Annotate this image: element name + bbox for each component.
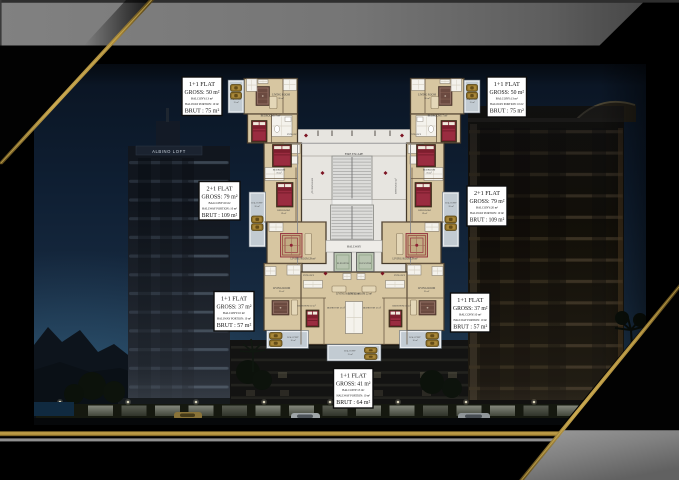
- svg-text:LIVING ROOM: LIVING ROOM: [273, 287, 291, 290]
- svg-text:BEDROOM 10 m²: BEDROOM 10 m²: [297, 305, 315, 308]
- svg-text:FIRE ESCAPE: FIRE ESCAPE: [345, 152, 364, 156]
- svg-text:BALCONY: BALCONY: [230, 98, 242, 101]
- svg-text:BRUT : 57 m²: BRUT : 57 m²: [217, 322, 252, 329]
- svg-text:ENTRANCE 5m²: ENTRANCE 5m²: [311, 178, 314, 194]
- svg-text:GROSS: 79 m²: GROSS: 79 m²: [202, 194, 238, 201]
- svg-text:HALLWAY PORTION: 10 m²: HALLWAY PORTION: 10 m²: [185, 102, 219, 106]
- svg-text:BEDROOM 12 m²: BEDROOM 12 m²: [327, 307, 345, 310]
- svg-text:GROSS: 41 m²: GROSS: 41 m²: [336, 381, 371, 388]
- svg-text:BALCONY: BALCONY: [466, 98, 478, 101]
- svg-text:ENTRANCE 5m²: ENTRANCE 5m²: [395, 178, 398, 194]
- svg-text:BRUT : 57 m²: BRUT : 57 m²: [453, 324, 487, 331]
- svg-text:BALCONY:13 m²: BALCONY:13 m²: [191, 96, 213, 100]
- svg-text:16 m²: 16 m²: [426, 172, 432, 174]
- svg-text:20 m²: 20 m²: [254, 205, 259, 208]
- svg-text:BALCONY:20 m²: BALCONY:20 m²: [476, 205, 498, 209]
- svg-text:LIVING ROOM 29 m²: LIVING ROOM 29 m²: [393, 258, 418, 261]
- svg-text:BALCONY:13 m²: BALCONY:13 m²: [342, 388, 364, 392]
- svg-text:BALCONY: BALCONY: [287, 336, 299, 339]
- svg-text:BEDROOM: BEDROOM: [418, 209, 431, 212]
- svg-text:BALCONY:20 m²: BALCONY:20 m²: [208, 201, 230, 205]
- svg-text:BALCONY:10 m²: BALCONY:10 m²: [459, 312, 481, 316]
- svg-text:BEDROOM: BEDROOM: [277, 209, 290, 212]
- svg-text:BALCONY: BALCONY: [251, 202, 263, 205]
- svg-text:HALLWAY PORTION: 10 m²: HALLWAY PORTION: 10 m²: [202, 206, 237, 210]
- svg-text:HALLWAY PORTION: 10 m²: HALLWAY PORTION: 10 m²: [454, 318, 488, 322]
- svg-text:10 m²: 10 m²: [412, 339, 417, 342]
- svg-text:BEDROOM 17 m²: BEDROOM 17 m²: [428, 115, 448, 118]
- svg-text:BALCONY:13 m²: BALCONY:13 m²: [496, 96, 518, 100]
- svg-text:BRUT : 109 m²: BRUT : 109 m²: [470, 217, 505, 224]
- svg-text:HALLWAY PORTION: 10 m²: HALLWAY PORTION: 10 m²: [490, 102, 524, 106]
- svg-text:BEDROOM 10 m²: BEDROOM 10 m²: [392, 305, 410, 308]
- svg-text:10 m²: 10 m²: [290, 339, 295, 342]
- svg-text:21 m²: 21 m²: [424, 291, 430, 293]
- svg-text:BRUT : 109 m²: BRUT : 109 m²: [202, 212, 238, 219]
- svg-text:GROSS: 50 m²: GROSS: 50 m²: [185, 89, 220, 96]
- svg-text:HALLWAY PORTION: 10 m²: HALLWAY PORTION: 10 m²: [337, 393, 371, 397]
- svg-text:ENTRANCE: ENTRANCE: [410, 133, 422, 136]
- svg-text:ENTRANCE: ENTRANCE: [303, 274, 315, 277]
- svg-text:GROSS: 50 m²: GROSS: 50 m²: [490, 89, 525, 96]
- svg-text:BRUT : 75 m²: BRUT : 75 m²: [490, 108, 524, 115]
- svg-text:20 m²: 20 m²: [278, 97, 284, 100]
- svg-text:BRUT : 75 m²: BRUT : 75 m²: [185, 108, 220, 115]
- svg-text:16 m²: 16 m²: [276, 172, 282, 174]
- svg-text:HALLWAY: HALLWAY: [347, 244, 362, 248]
- svg-text:1+1 FLAT: 1+1 FLAT: [494, 81, 520, 88]
- svg-text:GROSS: 79 m²: GROSS: 79 m²: [470, 198, 505, 205]
- svg-text:ENTRANCE: ENTRANCE: [287, 133, 299, 136]
- svg-text:BALCONY: BALCONY: [409, 336, 421, 339]
- svg-text:BALCONY:10 m²: BALCONY:10 m²: [223, 311, 245, 315]
- svg-text:ENTRANCE: ENTRANCE: [394, 274, 406, 277]
- svg-text:1+1 FLAT: 1+1 FLAT: [221, 296, 247, 303]
- svg-text:ALBINO LOFT: ALBINO LOFT: [152, 149, 186, 154]
- svg-text:LIVING ROOM: LIVING ROOM: [418, 287, 436, 290]
- svg-text:2+1 FLAT: 2+1 FLAT: [474, 190, 500, 197]
- svg-text:BALCONY: BALCONY: [445, 202, 457, 205]
- svg-text:13 m²: 13 m²: [469, 101, 474, 104]
- svg-text:LIVING ROOM 22 m²: LIVING ROOM 22 m²: [336, 293, 360, 296]
- svg-text:BEDROOM: BEDROOM: [273, 168, 286, 171]
- svg-text:20 m²: 20 m²: [448, 205, 453, 208]
- svg-text:21 m²: 21 m²: [279, 291, 285, 293]
- svg-text:GROSS: 37 m²: GROSS: 37 m²: [453, 305, 488, 312]
- svg-text:19 m²: 19 m²: [281, 213, 287, 215]
- svg-text:LIVING ROOM 29 m²: LIVING ROOM 29 m²: [291, 258, 316, 261]
- svg-text:BEDROOM: BEDROOM: [423, 168, 436, 171]
- svg-text:HALLWAY PORTION: 10 m²: HALLWAY PORTION: 10 m²: [470, 211, 504, 215]
- svg-text:20 m²: 20 m²: [424, 97, 430, 100]
- svg-text:HALLWAY PORTION: 10 m²: HALLWAY PORTION: 10 m²: [217, 316, 251, 320]
- svg-text:GROSS: 37 m²: GROSS: 37 m²: [217, 304, 252, 311]
- svg-text:ELEVATOR: ELEVATOR: [337, 262, 349, 265]
- svg-text:1+1 FLAT: 1+1 FLAT: [457, 297, 483, 304]
- svg-text:BRUT : 64 m²: BRUT : 64 m²: [336, 399, 370, 406]
- svg-text:BEDROOM 12 m²: BEDROOM 12 m²: [363, 307, 381, 310]
- svg-text:ELEVATOR: ELEVATOR: [359, 262, 371, 265]
- svg-text:BALCONY: BALCONY: [344, 350, 356, 353]
- svg-text:19 m²: 19 m²: [422, 213, 428, 215]
- svg-text:1+1 FLAT: 1+1 FLAT: [340, 373, 366, 380]
- svg-text:1+1 FLAT: 1+1 FLAT: [189, 81, 215, 88]
- svg-text:BEDROOM 17 m²: BEDROOM 17 m²: [261, 115, 281, 118]
- svg-text:13 m²: 13 m²: [347, 353, 352, 356]
- svg-text:2+1 FLAT: 2+1 FLAT: [206, 186, 232, 193]
- svg-text:13 m²: 13 m²: [233, 101, 238, 104]
